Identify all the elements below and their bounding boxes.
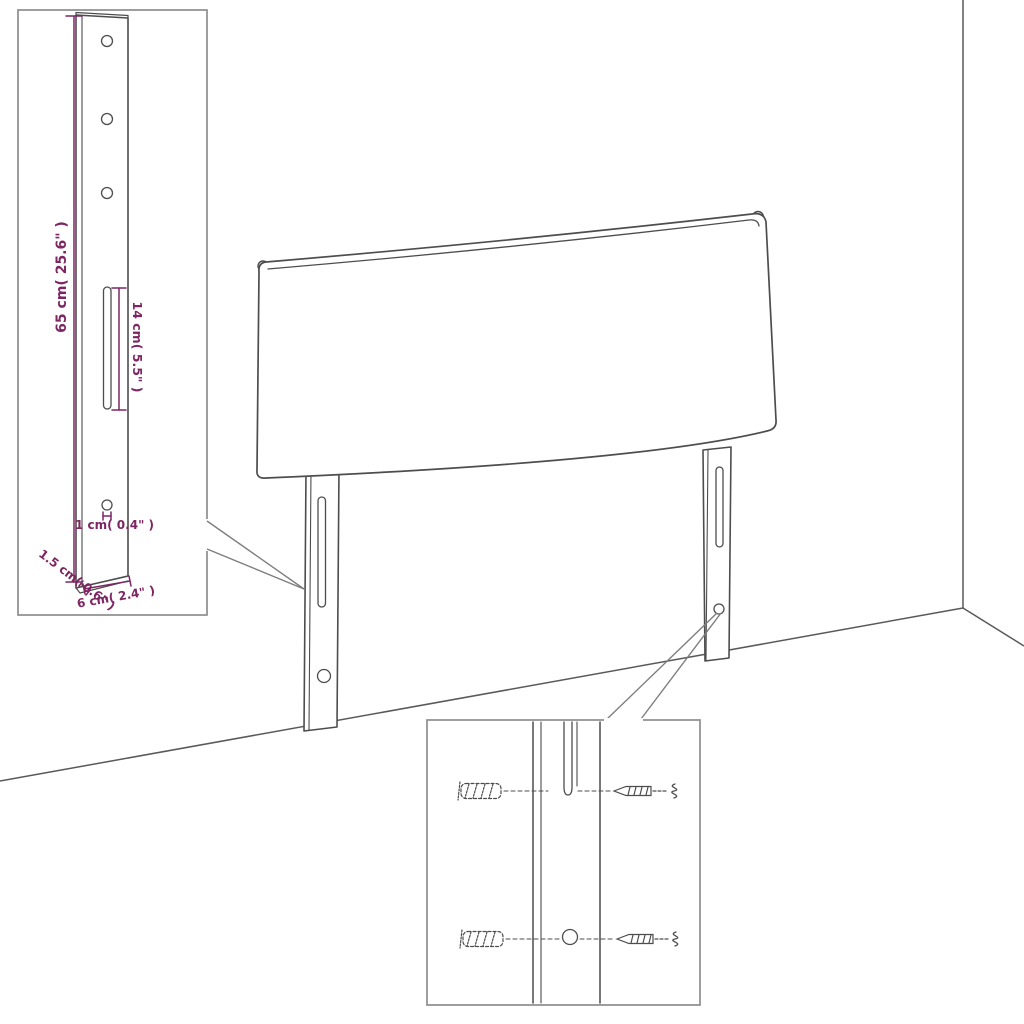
headboard-leg-left [304,467,339,731]
label-slot-length: 14 cm( 5.5" ) [130,302,145,393]
callout-line [606,613,717,720]
diagram-canvas: 65 cm( 25.6" ) 14 cm( 5.5" ) 1 cm( 0.4" … [0,0,1024,1024]
floor-line-right [963,608,1024,646]
headboard [257,212,776,732]
callout-line [641,613,721,719]
headboard-panel [257,214,776,478]
headboard-leg-right [703,447,731,661]
mounting-detail-inset [427,720,700,1005]
headboard-assembly-diagram: 65 cm( 25.6" ) 14 cm( 5.5" ) 1 cm( 0.4" … [0,0,1024,1024]
label-hole-size: 1 cm( 0.4" ) [75,518,154,532]
label-leg-height: 65 cm( 25.6" ) [54,221,70,333]
callout-wedge-right [606,613,721,720]
callout-wedge-left [207,521,304,589]
leg-front-view [76,13,128,594]
leg-body [76,15,128,588]
